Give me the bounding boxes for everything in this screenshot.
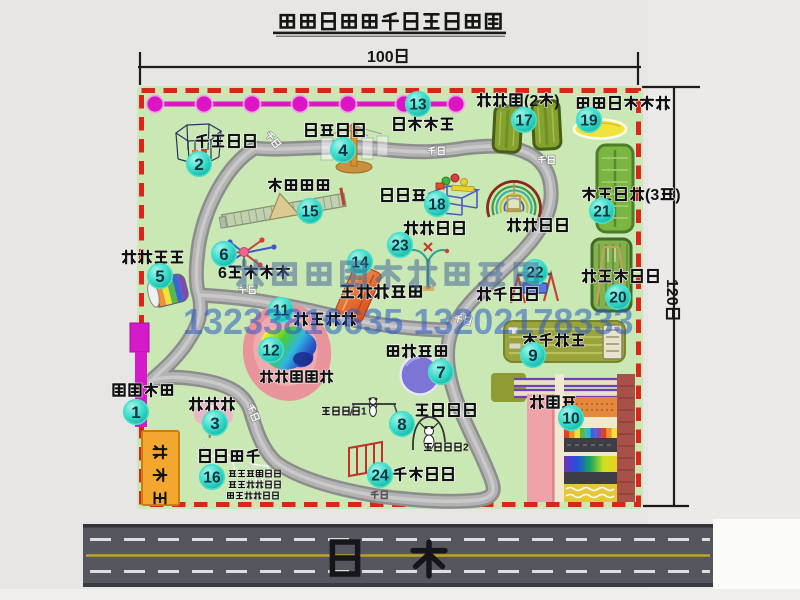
svg-text:100: 100 bbox=[367, 49, 394, 66]
svg-text:13233816635 13202178333: 13233816635 13202178333 bbox=[183, 301, 633, 342]
svg-text:10: 10 bbox=[562, 411, 579, 428]
svg-text:8: 8 bbox=[397, 415, 406, 434]
svg-text:1: 1 bbox=[361, 407, 367, 418]
svg-text:6: 6 bbox=[219, 245, 228, 264]
svg-text:9: 9 bbox=[528, 346, 537, 365]
svg-text:21: 21 bbox=[593, 204, 611, 221]
svg-text:18: 18 bbox=[428, 197, 446, 214]
svg-text:): ) bbox=[554, 93, 559, 110]
svg-text:2: 2 bbox=[463, 443, 469, 454]
svg-text:4: 4 bbox=[338, 141, 348, 160]
svg-text:13: 13 bbox=[409, 97, 427, 114]
svg-text:24: 24 bbox=[371, 468, 389, 485]
svg-text:12: 12 bbox=[262, 343, 279, 360]
svg-text:23: 23 bbox=[391, 238, 409, 255]
svg-text:16: 16 bbox=[203, 470, 221, 487]
svg-text:2: 2 bbox=[194, 155, 203, 174]
svg-text:3: 3 bbox=[210, 414, 219, 433]
svg-text:7: 7 bbox=[436, 363, 445, 382]
svg-text:17: 17 bbox=[515, 113, 532, 130]
svg-text:120: 120 bbox=[663, 279, 680, 306]
svg-text:1: 1 bbox=[131, 403, 140, 422]
svg-text:19: 19 bbox=[580, 113, 598, 130]
svg-text:): ) bbox=[675, 187, 680, 204]
svg-text:15: 15 bbox=[301, 204, 319, 221]
svg-text:5: 5 bbox=[155, 267, 164, 286]
svg-text:6: 6 bbox=[218, 265, 227, 282]
svg-text:(3: (3 bbox=[645, 187, 659, 204]
